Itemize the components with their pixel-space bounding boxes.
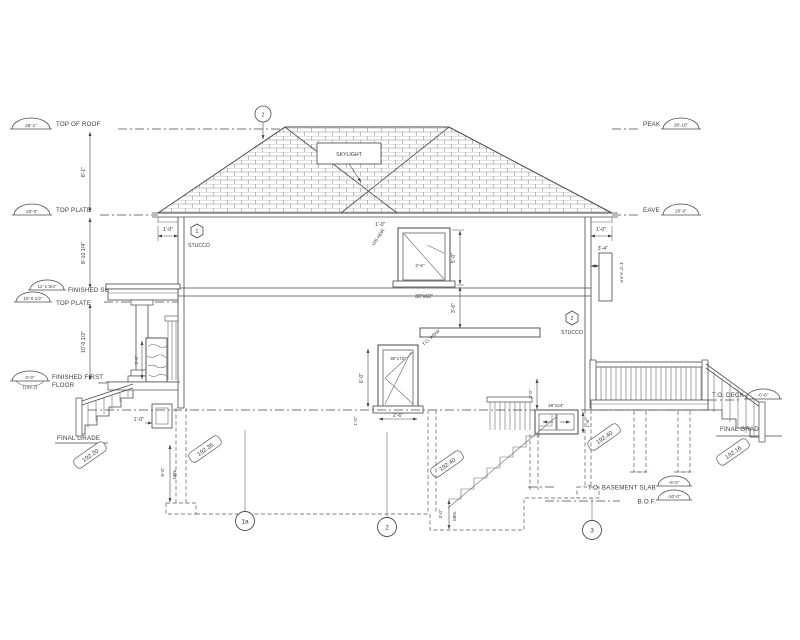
level-top-plate-upper: 20'-0" TOP PLATE: [12, 204, 158, 215]
pit-depth-text: 4'-0": [438, 509, 443, 519]
fff-elev: 0'-0": [25, 375, 35, 380]
pit-min-text: MIN.: [452, 511, 457, 521]
fff-label-1: FINISHED FIRST: [52, 374, 103, 381]
stucco-left-number: 1: [196, 229, 199, 235]
keynote-stucco-left: 1 STUCCO: [188, 224, 210, 249]
footing-min-text: MIN.: [172, 469, 177, 479]
top-plate-lower-elev: 10'-0 1/2": [23, 296, 43, 301]
vent-note: 1'-2" A.F.F.: [619, 262, 624, 284]
w1-height-dim: 6'-0": [359, 373, 365, 383]
grade-tag-4-group: 192.40: [586, 422, 622, 452]
dim-footing-depth: 6'-0" MIN.: [160, 445, 177, 502]
w2-head-dim: 1'-0": [375, 222, 385, 228]
dim-eave-overhang-right: 1'-0": [591, 226, 612, 241]
fff-elev-geodetic: (192.2): [23, 385, 38, 390]
window-basement: 48"x24" 1'-8": [535, 403, 590, 434]
level-to-basement-slab: T.O. BASEMENT SLAB -9'-0": [528, 476, 692, 492]
deck-balusters: [596, 367, 701, 400]
foundation: 6'-0" MIN. 4'-0" MIN.: [160, 408, 599, 530]
eave-elev: 20'-0": [675, 209, 687, 214]
bof-elev: -10'-0": [667, 494, 681, 499]
basement-window-dim: 1'-8": [585, 418, 590, 428]
stucco-right-label: STUCCO: [561, 330, 583, 336]
level-eave: EAVE 20'-0": [612, 204, 701, 215]
level-peak: PEAK 28'-10": [612, 118, 701, 129]
final-grade-left: FINAL GRADE 192.20: [55, 435, 108, 470]
roof-keynote-number: 2: [262, 113, 265, 119]
level-top-of-roof: 28'-1" TOP OF ROOF: [10, 118, 283, 129]
w2-glass-dim: 2'-6": [415, 263, 425, 268]
fsf-elev: 11'-1 3/4": [37, 284, 56, 289]
to-basement-slab-elev: -9'-0": [669, 480, 680, 485]
dim-roof-height: 8'-1": [81, 132, 90, 212]
w1-width-dim: 2'-6": [393, 413, 403, 419]
grade-tag-3-group: 192.40: [429, 449, 465, 479]
stair-guard-dim: 3'-0": [528, 389, 533, 399]
dim-first-storey-text: 10'-0 1/2": [81, 331, 87, 353]
stucco-right-number: 2: [571, 316, 574, 322]
grid-bubble-3: 3: [583, 498, 602, 540]
top-of-roof-label: TOP OF ROOF: [56, 121, 101, 128]
final-grade-right: FINAL GRADE 192.16: [715, 426, 782, 467]
dim-second-storey-text: 8'-10 1/4": [81, 242, 87, 264]
elevation-drawing-canvas: SKYLIGHT 2 28'-1" TOP OF ROOF 20'-0" TOP…: [0, 0, 800, 640]
level-finished-first-floor: 0'-0" (192.2) FINISHED FIRST FLOOR: [10, 371, 110, 390]
dim-pit-depth: 4'-0" MIN.: [438, 500, 457, 529]
roof: [152, 127, 618, 223]
dim-first-storey: 10'-0 1/2": [81, 304, 90, 380]
window-second-floor: 2'-6" 30"x60" 5'-0" 3'-0" 1'-0" U/S HDR: [371, 222, 464, 328]
grid-bubble-2-label: 2: [385, 525, 389, 532]
dim-eave-left-text: 1'-0": [163, 227, 173, 233]
grade-tag-2-group: 192.35: [187, 434, 223, 464]
to-deck-label: T.O. DECK: [712, 392, 745, 399]
w2-sill-dim: 3'-0": [451, 303, 457, 313]
bof-label: B.O.F.: [638, 499, 656, 506]
wall-vent: 3'-4" 1'-2" A.F.F.: [591, 246, 624, 301]
dim-eave-right-text: 1'-0": [596, 227, 606, 233]
top-plate-upper-label: TOP PLATE: [56, 207, 91, 214]
w2-head-note: U/S HDR: [371, 228, 386, 247]
w1-size-label: 30"x72": [390, 356, 406, 361]
porch-pier-footing: 1'-0": [134, 404, 172, 428]
to-deck-elev: -0'-6": [758, 393, 769, 398]
top-of-roof-elev: 28'-1": [25, 123, 37, 128]
grid-bubble-3-label: 3: [590, 528, 594, 535]
level-to-deck: T.O. DECK -0'-6": [708, 389, 782, 400]
to-basement-slab-label: T.O. BASEMENT SLAB: [588, 485, 656, 492]
deck: [590, 360, 765, 472]
eave-label: EAVE: [643, 207, 660, 214]
basement-window-size: 48"x24": [548, 403, 564, 408]
porch-rail-dim: 3'-0": [134, 355, 139, 365]
top-plate-lower-label: TOP PLATE: [56, 300, 91, 307]
dim-second-storey: 8'-10 1/4": [81, 218, 90, 288]
vent-dim: 3'-4": [598, 246, 608, 252]
w2-height-dim: 5'-0": [451, 253, 457, 263]
skylight-label: SKYLIGHT: [336, 152, 362, 158]
keynote-stucco-right: 2 STUCCO: [561, 311, 583, 336]
peak-elev: 28'-10": [674, 123, 689, 128]
stone-pier: [146, 338, 167, 382]
w2-size-label: 30"x60": [415, 294, 433, 300]
grid-bubble-2: 2: [378, 432, 397, 537]
w1-sill-dim: 1'-0": [353, 416, 358, 426]
roof-keynote: 2: [255, 106, 271, 139]
fff-label-2: FLOOR: [52, 382, 75, 389]
deck-piers: [630, 410, 694, 472]
dim-roof-height-text: 8'-1": [81, 167, 87, 177]
footing-depth-text: 6'-0": [160, 467, 165, 477]
pier-dim: 1'-0": [134, 417, 144, 423]
house-side-elevation: SKYLIGHT 2 28'-1" TOP OF ROOF 20'-0" TOP…: [0, 0, 800, 640]
dim-eave-overhang-left: 1'-0": [158, 226, 178, 241]
final-grade-right-label: FINAL GRADE: [720, 426, 763, 433]
stair-guard: 3'-0": [487, 379, 537, 430]
peak-label: PEAK: [643, 121, 661, 128]
grid-bubble-1a-label: 1a: [241, 519, 249, 526]
top-plate-upper-elev: 20'-0": [26, 209, 38, 214]
porch: 3'-0" 1'-0": [76, 284, 180, 436]
grid-bubble-1a: 1a: [236, 430, 255, 531]
stucco-left-label: STUCCO: [188, 243, 210, 249]
